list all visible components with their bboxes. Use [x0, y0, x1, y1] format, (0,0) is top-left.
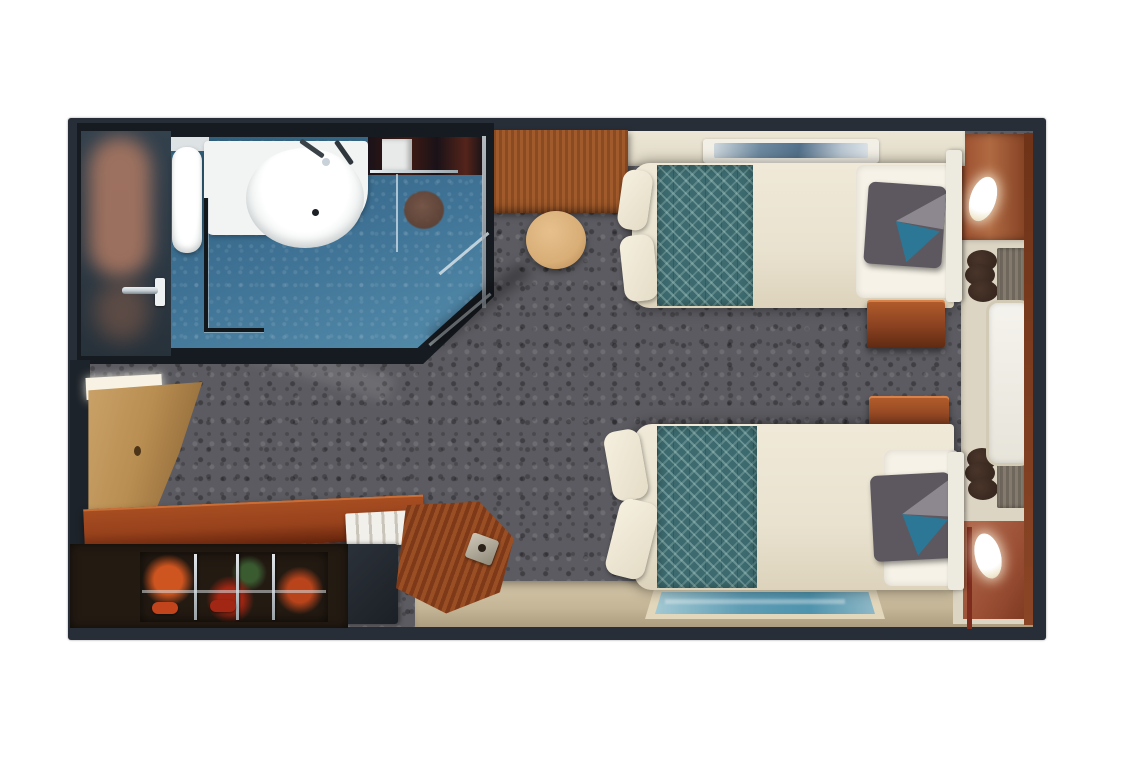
bed-runner-bottom: [657, 426, 757, 588]
sink-drain: [312, 209, 319, 216]
sconce-light-lower: [970, 531, 1006, 582]
closet-divider: [194, 554, 197, 620]
shoe: [210, 600, 236, 612]
sink-basin: [246, 148, 364, 248]
glass-partition-vertical: [204, 198, 208, 332]
framed-artwork: [703, 139, 879, 163]
headwall-wood-panel-top: [961, 134, 1033, 240]
shower-drain: [404, 191, 444, 229]
closet-divider: [272, 554, 275, 620]
faucet-base: [322, 158, 330, 166]
toilet: [172, 147, 202, 253]
closet-shelf: [142, 590, 326, 593]
headboard-bottom: [948, 452, 964, 590]
vanity-drawers: [345, 510, 409, 547]
pillow-bottom: [870, 472, 954, 562]
floor-plan-page: [0, 0, 1140, 760]
headwall-wood-panel-bottom: [953, 512, 1033, 624]
bathroom-vestibule: [81, 131, 171, 356]
pillow-top: [863, 181, 947, 268]
shower-glass-rail: [370, 170, 458, 173]
closet-divider: [236, 554, 239, 620]
nightstand-upper: [867, 300, 945, 348]
open-closet: [70, 544, 348, 628]
bed-runner-top: [657, 165, 753, 306]
chair-hinge-screw: [478, 544, 486, 552]
door-knob: [134, 446, 141, 456]
bathroom-door-handle: [122, 287, 158, 294]
desk: [487, 130, 628, 213]
round-stool: [526, 211, 586, 269]
window-chair-upper-back: [997, 248, 1025, 306]
sconce-light-upper: [964, 173, 1003, 225]
shower-seat: [382, 139, 412, 171]
glass-partition-horizontal: [204, 328, 264, 332]
door-frame-sliver: [967, 527, 972, 629]
shower-glass-panel: [396, 174, 398, 252]
duvet-fold: [619, 233, 660, 302]
bathroom-wall-edge-highlight: [482, 136, 486, 308]
shoe: [152, 602, 178, 614]
terracotta-panel: [963, 521, 1027, 619]
rug-highlight: [665, 599, 845, 604]
right-wall-wood-strip: [1024, 133, 1033, 625]
headboard-top: [946, 150, 962, 302]
blurred-door-reflection: [89, 137, 151, 277]
bedside-rug: [645, 587, 885, 619]
closet-cubbies: [140, 552, 328, 622]
artwork-canvas: [714, 143, 868, 158]
